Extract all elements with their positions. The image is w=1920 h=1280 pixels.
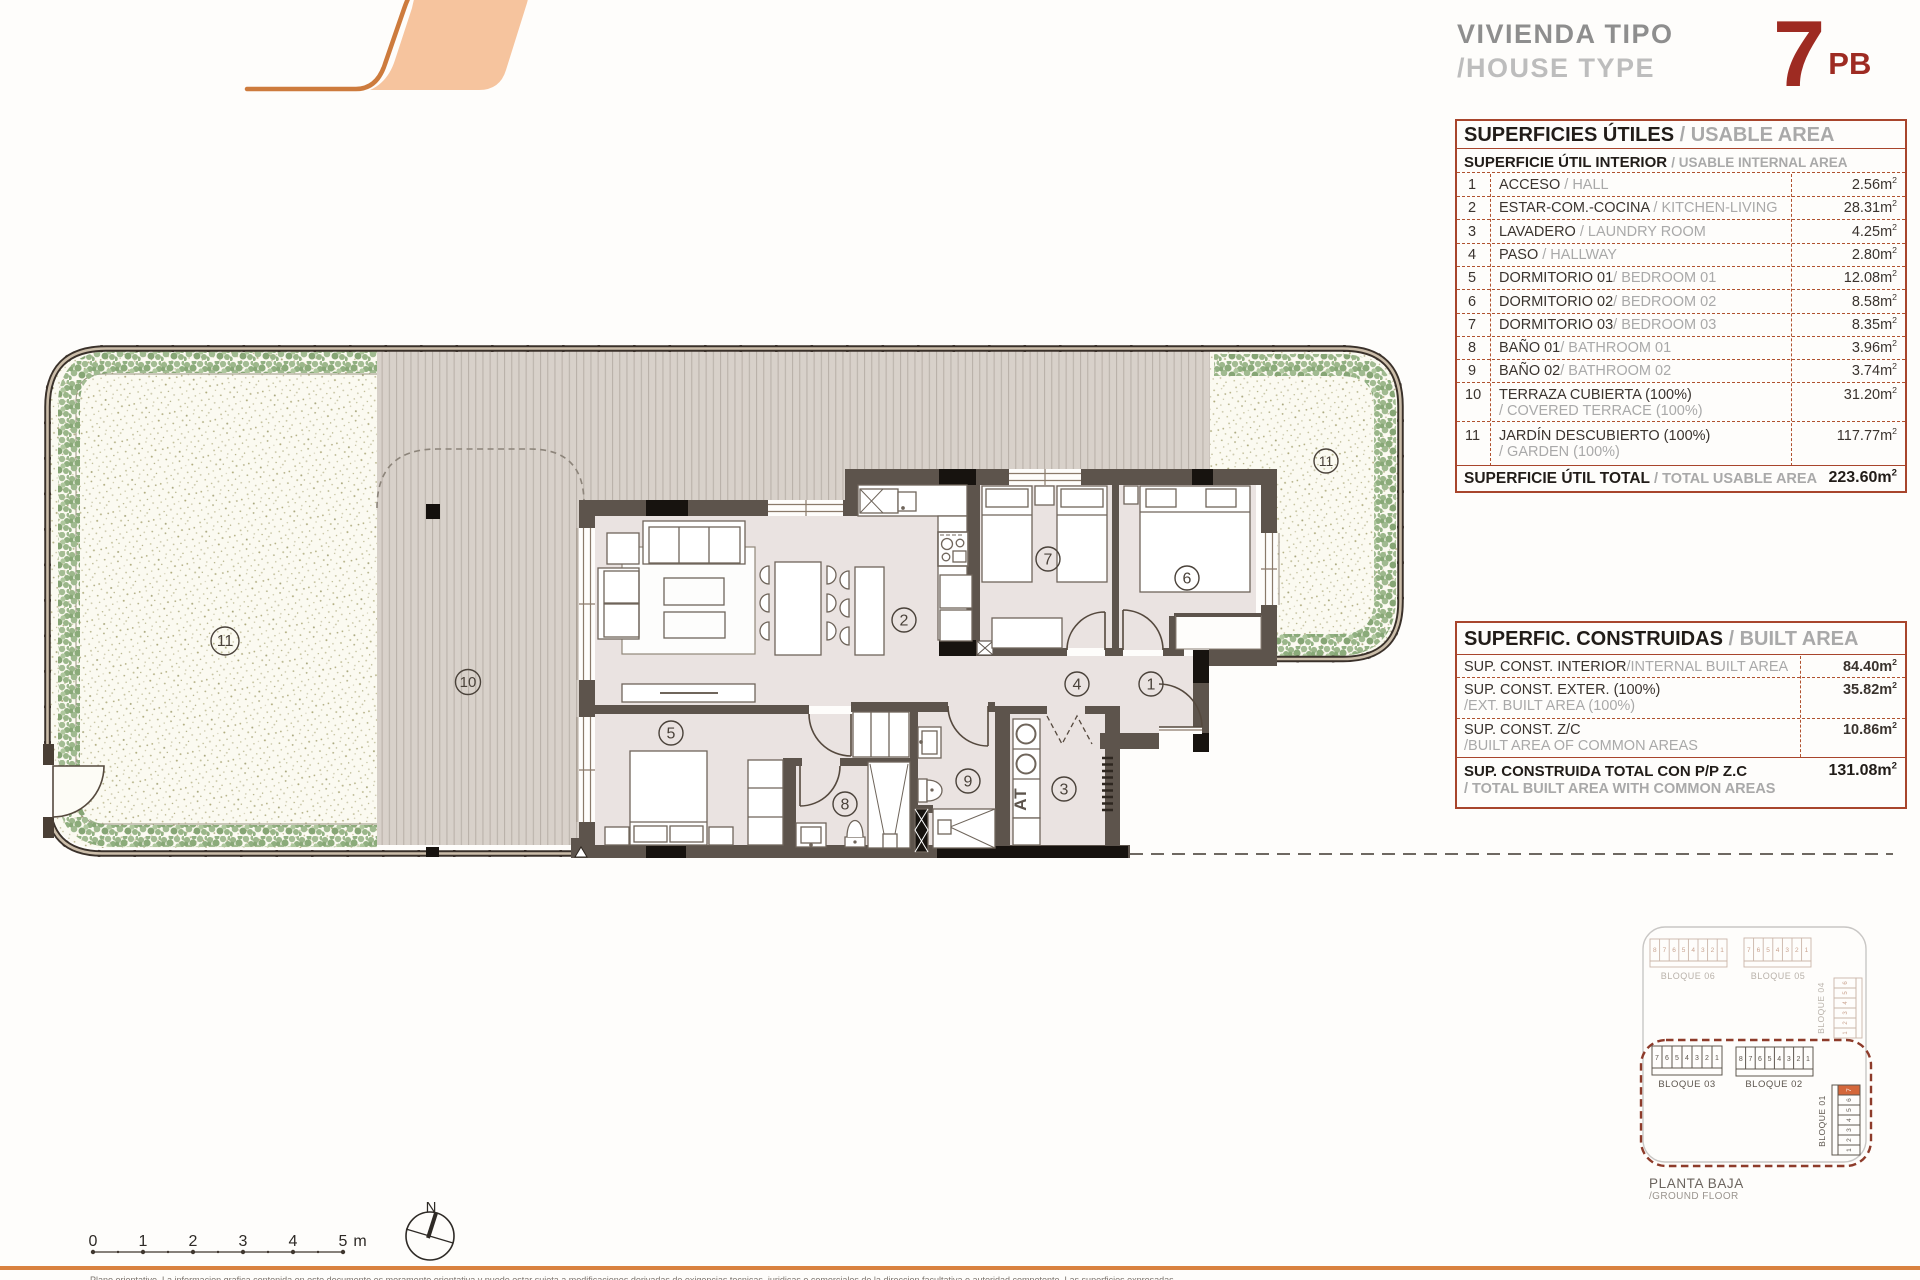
svg-text:5: 5 [1768, 1056, 1772, 1063]
svg-text:2: 2 [189, 1233, 198, 1250]
svg-text:2: 2 [1796, 1056, 1800, 1063]
svg-text:6: 6 [1846, 1098, 1853, 1102]
svg-text:3: 3 [1787, 1056, 1791, 1063]
svg-text:2: 2 [900, 613, 909, 630]
svg-text:BLOQUE 01: BLOQUE 01 [1817, 1095, 1827, 1147]
svg-text:1: 1 [1147, 677, 1156, 694]
svg-text:1: 1 [1715, 1055, 1719, 1062]
svg-text:8: 8 [1739, 1056, 1743, 1063]
svg-text:11: 11 [1319, 453, 1334, 469]
svg-text:BLOQUE 02: BLOQUE 02 [1745, 1079, 1802, 1090]
svg-text:4: 4 [1776, 947, 1780, 954]
svg-text:1: 1 [1846, 1148, 1853, 1152]
svg-text:5: 5 [1682, 947, 1686, 954]
svg-text:5: 5 [339, 1233, 348, 1250]
svg-text:4: 4 [1846, 1118, 1853, 1122]
svg-text:2: 2 [1795, 947, 1799, 954]
svg-text:5: 5 [1846, 1108, 1853, 1112]
svg-text:8: 8 [1653, 947, 1657, 954]
svg-text:/GROUND FLOOR: /GROUND FLOOR [1649, 1191, 1739, 1202]
svg-text:11: 11 [217, 633, 234, 650]
svg-text:4: 4 [1843, 1001, 1849, 1005]
svg-text:3: 3 [1701, 947, 1705, 954]
svg-text:5: 5 [1766, 947, 1770, 954]
svg-text:2: 2 [1711, 947, 1715, 954]
svg-text:7: 7 [1655, 1055, 1659, 1062]
svg-text:1: 1 [139, 1233, 148, 1250]
svg-text:3: 3 [1695, 1055, 1699, 1062]
svg-text:8: 8 [841, 797, 850, 814]
svg-text:9: 9 [964, 774, 973, 791]
svg-text:7: 7 [1748, 1056, 1752, 1063]
svg-text:6: 6 [1758, 1056, 1762, 1063]
svg-text:4: 4 [1685, 1055, 1689, 1062]
svg-text:1: 1 [1805, 947, 1809, 954]
svg-text:BLOQUE 06: BLOQUE 06 [1661, 971, 1716, 981]
svg-text:6: 6 [1183, 571, 1192, 588]
svg-text:2: 2 [1846, 1138, 1853, 1142]
svg-text:5: 5 [1843, 991, 1849, 995]
svg-text:N: N [426, 1199, 437, 1216]
svg-text:6: 6 [1843, 981, 1849, 985]
svg-text:4: 4 [1777, 1056, 1781, 1063]
svg-text:5: 5 [667, 726, 676, 743]
svg-text:7: 7 [1747, 947, 1751, 954]
svg-text:4: 4 [1073, 677, 1082, 694]
svg-text:10: 10 [460, 674, 477, 691]
svg-text:2: 2 [1705, 1055, 1709, 1062]
svg-text:6: 6 [1757, 947, 1761, 954]
svg-text:7: 7 [1663, 947, 1667, 954]
svg-text:7: 7 [1846, 1088, 1853, 1092]
svg-text:BLOQUE 03: BLOQUE 03 [1658, 1079, 1715, 1090]
svg-text:6: 6 [1672, 947, 1676, 954]
svg-text:1: 1 [1720, 947, 1724, 954]
svg-text:BLOQUE 04: BLOQUE 04 [1816, 982, 1826, 1034]
svg-text:1: 1 [1843, 1031, 1849, 1035]
svg-text:BLOQUE 05: BLOQUE 05 [1751, 971, 1806, 981]
svg-text:AT: AT [1011, 787, 1030, 810]
svg-text:4: 4 [289, 1233, 298, 1250]
svg-text:2: 2 [1843, 1021, 1849, 1025]
svg-text:0: 0 [89, 1233, 98, 1250]
svg-text:7: 7 [1044, 552, 1053, 569]
svg-text:3: 3 [239, 1233, 248, 1250]
svg-text:3: 3 [1843, 1011, 1849, 1015]
svg-text:6: 6 [1665, 1055, 1669, 1062]
svg-text:1: 1 [1806, 1056, 1810, 1063]
svg-text:3: 3 [1846, 1128, 1853, 1132]
svg-text:5: 5 [1675, 1055, 1679, 1062]
svg-text:m: m [353, 1233, 366, 1250]
svg-text:3: 3 [1785, 947, 1789, 954]
svg-text:4: 4 [1691, 947, 1695, 954]
svg-text:PLANTA BAJA: PLANTA BAJA [1649, 1176, 1744, 1191]
svg-text:3: 3 [1060, 782, 1069, 799]
